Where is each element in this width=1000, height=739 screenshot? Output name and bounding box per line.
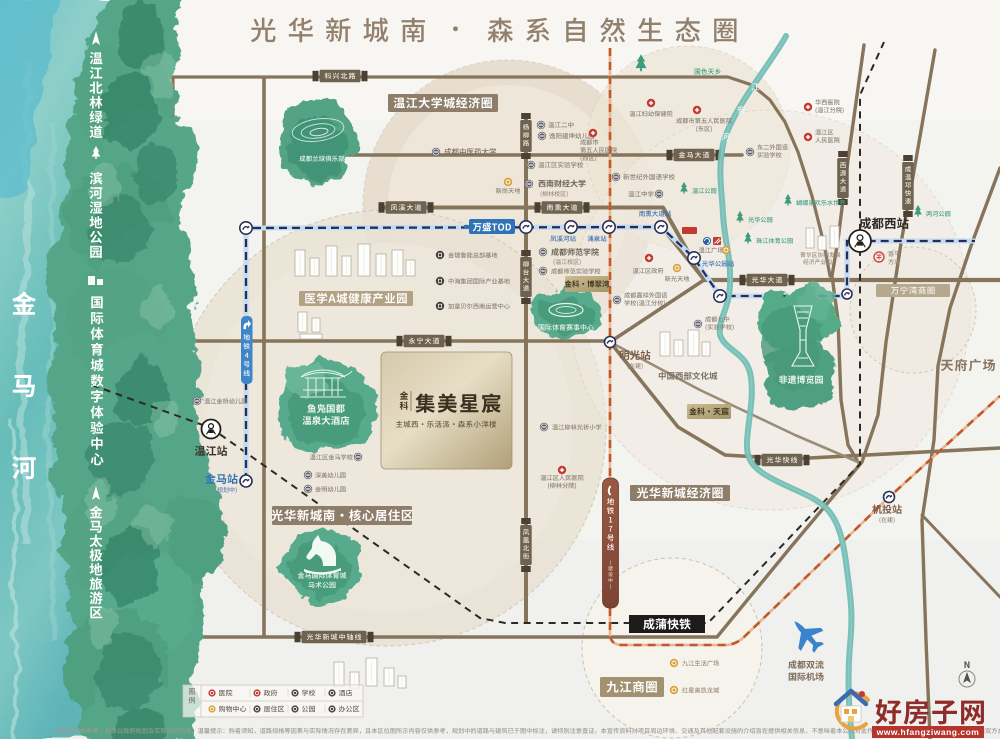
svg-text:www.hfangziwang.com: www.hfangziwang.com xyxy=(876,727,980,737)
